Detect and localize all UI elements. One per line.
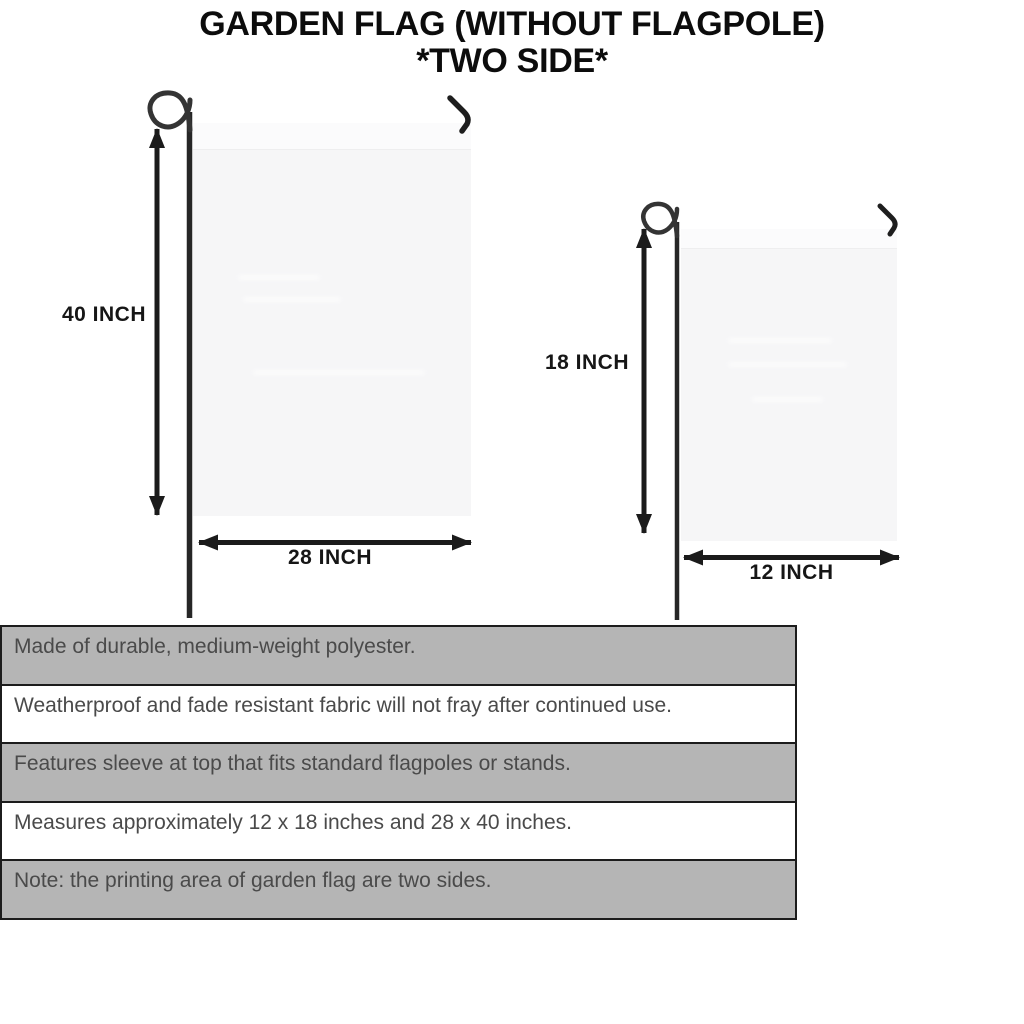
flag-hook-large: [450, 98, 468, 131]
flag-hook-small: [880, 206, 895, 234]
spec-row-weatherproof: Weatherproof and fade resistant fabric w…: [2, 686, 795, 745]
flagpole-small: [643, 204, 677, 620]
width-label-large: 28 INCH: [240, 546, 420, 570]
spec-row-measures: Measures approximately 12 x 18 inches an…: [2, 803, 795, 862]
garden-flag-product-diagram: GARDEN FLAG (WITHOUT FLAGPOLE) *TWO SIDE…: [0, 0, 1024, 1024]
width-label-small: 12 INCH: [700, 561, 883, 585]
height-label-large: 40 INCH: [58, 303, 146, 327]
spec-row-note: Note: the printing area of garden flag a…: [2, 861, 795, 918]
spec-row-sleeve: Features sleeve at top that fits standar…: [2, 744, 795, 803]
spec-row-material: Made of durable, medium-weight polyester…: [2, 627, 795, 686]
height-label-small: 18 INCH: [543, 351, 629, 375]
spec-table: Made of durable, medium-weight polyester…: [0, 625, 797, 920]
